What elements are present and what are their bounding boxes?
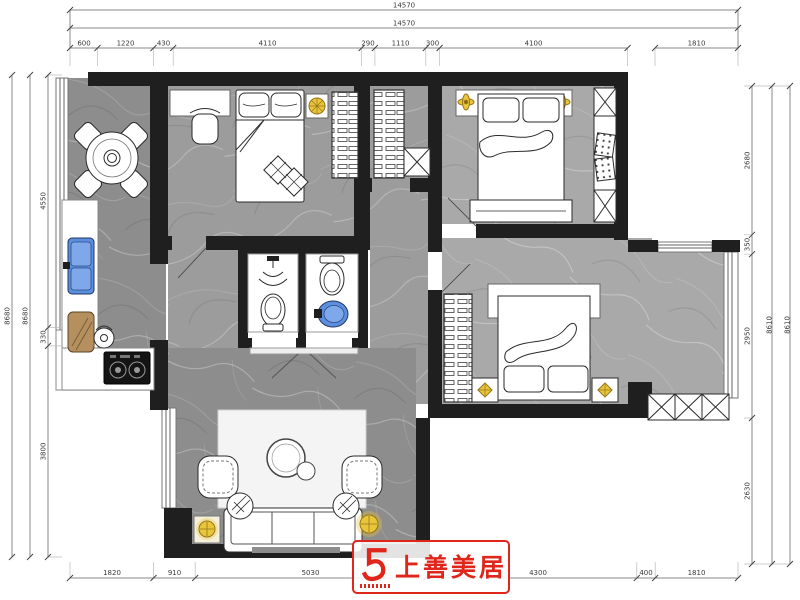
dim-top-seg: 430 xyxy=(157,40,170,48)
logo-mark-icon xyxy=(361,546,389,582)
shaft-box xyxy=(404,148,430,176)
bed1 xyxy=(236,90,308,202)
dim-bottom-seg: 1810 xyxy=(688,569,706,577)
dim-bottom-seg: 1820 xyxy=(103,569,121,577)
dim-bottom-seg: 910 xyxy=(168,569,181,577)
dim-left-seg: 4550 xyxy=(40,192,48,210)
armchair-right xyxy=(342,456,382,498)
side-table xyxy=(297,462,315,480)
dim-right-total-inner: 8610 xyxy=(766,316,774,334)
logo-text: 上善美居 xyxy=(395,555,507,580)
kitchen-sink xyxy=(63,238,94,294)
dim-top-seg: 1110 xyxy=(392,40,410,48)
cutting-board xyxy=(68,312,94,352)
bedroom2-cabinet-column xyxy=(594,88,616,222)
dim-right-seg: 350 xyxy=(744,238,752,251)
toilet-right xyxy=(320,256,344,295)
dim-top-seg: 300 xyxy=(426,40,439,48)
wardrobe-hall xyxy=(374,90,404,178)
balcony-side-window xyxy=(724,252,738,398)
logo-mark-wrap xyxy=(360,546,390,588)
tv xyxy=(252,547,340,553)
dim-bottom-seg: 4300 xyxy=(529,569,547,577)
floorplan-sheet: 14570 14570 600 1220 430 4110 290 1110 3… xyxy=(0,0,800,600)
dim-top-seg: 1220 xyxy=(117,40,135,48)
wardrobe-bedroom1 xyxy=(332,92,358,178)
desk xyxy=(170,90,230,116)
dim-left-seg: 3800 xyxy=(40,443,48,461)
dim-top-seg: 4100 xyxy=(525,40,543,48)
dim-left-total-outer: 8680 xyxy=(4,307,12,325)
balcony-floor xyxy=(648,252,726,394)
balcony-cabinets xyxy=(648,394,729,420)
nightstand3-left xyxy=(472,378,498,402)
plant-right xyxy=(333,493,359,519)
dim-left-seg: 330 xyxy=(40,330,48,343)
nightstand-lamp xyxy=(306,94,328,118)
dim-left-total-inner: 8680 xyxy=(22,307,30,325)
kettle xyxy=(94,326,114,348)
dim-right-seg: 2630 xyxy=(744,482,752,500)
dim-top-seg: 1810 xyxy=(688,40,706,48)
wardrobe-bedroom3 xyxy=(444,294,472,402)
balcony-top-window xyxy=(658,242,712,252)
armchair-left xyxy=(198,456,238,498)
cooktop xyxy=(104,352,150,384)
floor-lamp-left xyxy=(194,516,220,543)
toilet-left xyxy=(261,294,285,331)
dim-right-seg: 2950 xyxy=(744,327,752,345)
dim-top-seg: 290 xyxy=(361,40,374,48)
living-window xyxy=(162,408,176,508)
bed3 xyxy=(498,296,590,400)
logo-subtext-marks xyxy=(360,584,390,588)
brand-logo: 上善美居 xyxy=(352,540,510,594)
floor-lamp-right xyxy=(356,511,382,537)
dim-top-seg: 4110 xyxy=(259,40,277,48)
plant-left xyxy=(227,493,253,519)
dim-right-seg: 2680 xyxy=(744,152,752,170)
dim-bottom-seg: 400 xyxy=(639,569,652,577)
floor-plan-drawing: 14570 14570 600 1220 430 4110 290 1110 3… xyxy=(0,0,800,600)
nightstand3-right xyxy=(592,378,618,402)
dim-right-total-outer: 8610 xyxy=(784,316,792,334)
dim-bottom-seg: 5030 xyxy=(302,569,320,577)
dim-top-seg: 600 xyxy=(77,40,90,48)
dim-top-total-inner: 14570 xyxy=(393,20,415,28)
bed2 xyxy=(470,94,572,222)
dim-top-total-outer: 14570 xyxy=(393,2,415,10)
